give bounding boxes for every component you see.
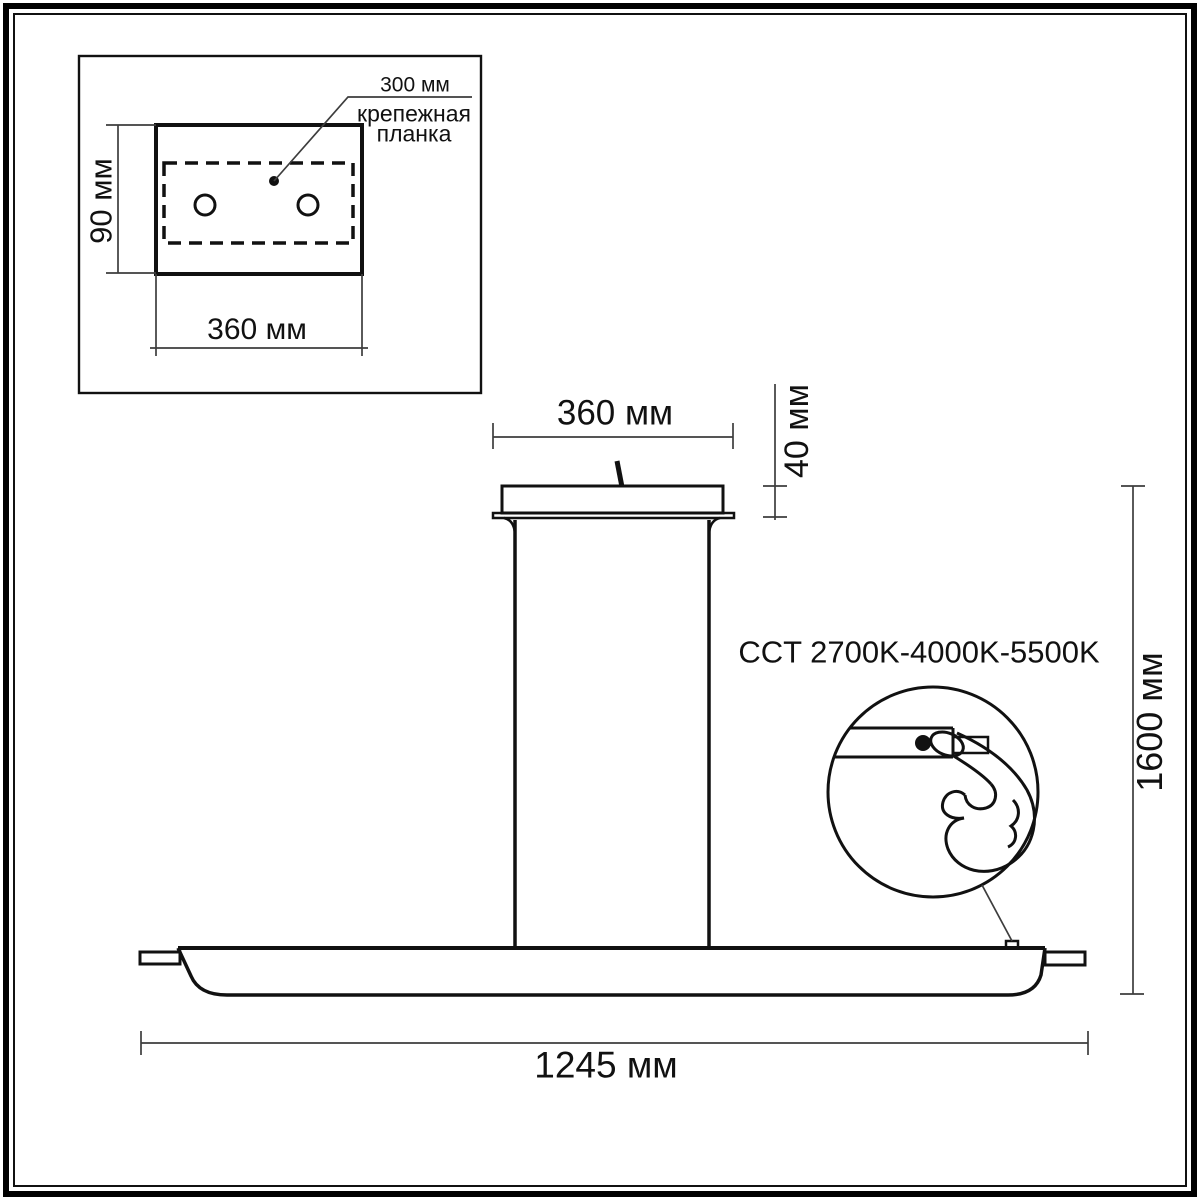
dim-label-canopy-width: 360 мм [557,396,673,431]
knuckle-detail [1008,800,1018,847]
cct-range-label: CCT 2700K-4000K-5500K [738,637,1099,668]
end-cap-right [1045,952,1085,965]
dim-label-overall-height: 1600 мм [1132,652,1168,792]
curled-finger-2 [942,791,965,818]
pointing-hand-icon [927,727,1034,871]
end-cap-left [140,952,180,964]
line-art [0,0,1200,1200]
cct-detail [828,687,1038,941]
screw-hole-right [298,195,318,215]
light-bar-body [178,948,1045,995]
dim-label-bar-length: 1245 мм [534,1047,677,1084]
callout-text-line2: планка [377,123,452,146]
ceiling-canopy [502,486,723,513]
wire-stub [617,461,622,487]
canopy-base-plate [493,513,734,518]
dim-label-plate-height: 90 мм [86,158,117,244]
finger-underside [952,755,991,784]
callout-value-label: 300 мм [380,75,450,96]
detail-leader-line [982,885,1012,941]
main-drawing [140,384,1145,1055]
dim-label-plate-width: 360 мм [207,315,307,345]
screw-hole-left [195,195,215,215]
mounting-plate-top-view [156,125,362,274]
cct-switch-button [1006,941,1018,948]
curled-finger-1 [965,784,996,809]
detail-touch-button [915,735,931,751]
mounting-bracket-dashed-outline [164,163,353,243]
lamp-dimension-diagram: 300 мм крепежная планка 90 мм 360 мм 360… [0,0,1200,1200]
dim-label-canopy-height: 40 мм [780,384,814,478]
